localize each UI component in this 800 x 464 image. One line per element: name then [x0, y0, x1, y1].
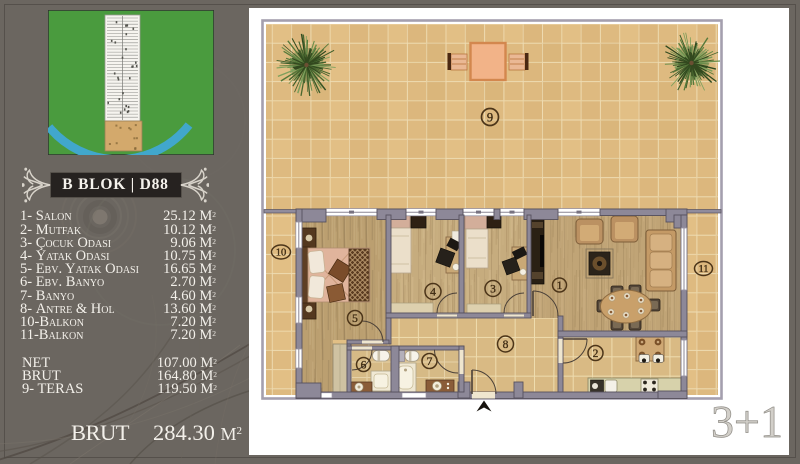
- svg-text:5: 5: [352, 313, 358, 325]
- svg-text:1: 1: [557, 280, 563, 292]
- svg-text:7: 7: [427, 356, 433, 368]
- svg-text:6: 6: [361, 359, 367, 371]
- svg-text:9: 9: [487, 110, 493, 124]
- svg-text:3+1: 3+1: [711, 396, 783, 447]
- svg-text:4: 4: [430, 286, 436, 298]
- svg-text:10: 10: [276, 248, 287, 259]
- svg-text:3: 3: [490, 283, 496, 295]
- svg-text:11: 11: [698, 264, 708, 275]
- svg-text:2: 2: [593, 348, 599, 360]
- svg-text:8: 8: [503, 339, 509, 351]
